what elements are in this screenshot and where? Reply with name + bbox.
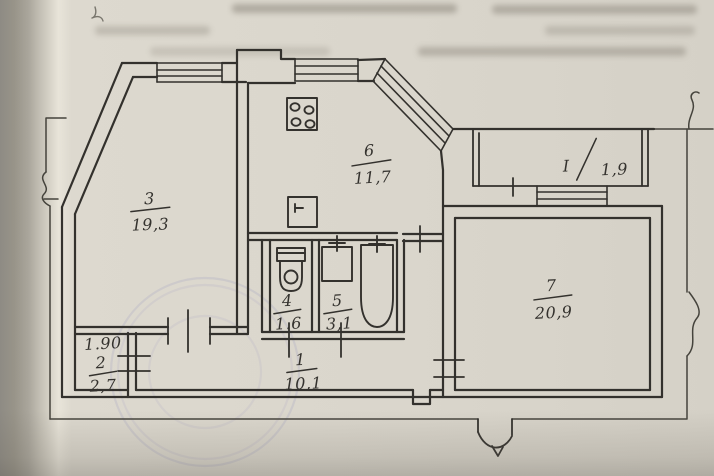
room-number: 5 (331, 291, 343, 311)
ink-mark (92, 7, 103, 21)
entrance-door-arc (478, 419, 512, 456)
room-area: 10,1 (284, 373, 322, 393)
toilet-icon (277, 248, 305, 291)
room-number: 2 (94, 353, 107, 373)
kitchen-sink-icon (288, 197, 317, 227)
bathtub-icon (361, 236, 393, 327)
room-7-label: 7 20,9 (532, 275, 573, 323)
room-number: 6 (363, 141, 375, 161)
washbasin-icon (322, 236, 352, 281)
floor-plan-drawing: 3 19,3 6 11,7 I 1,9 7 20,9 4 1.6 5 3,1 (0, 0, 714, 476)
kitchen-6-label: 6 11,7 (351, 140, 392, 188)
room-number: I (561, 156, 570, 175)
room-area: 2,7 (88, 375, 117, 395)
floor-plan-scan: 3 19,3 6 11,7 I 1,9 7 20,9 4 1.6 5 3,1 (0, 0, 714, 476)
room-area: 3,1 (325, 313, 353, 333)
room-area: 11,7 (353, 167, 392, 188)
room-area: 19,3 (131, 214, 169, 234)
outer-boundary-lines (42, 92, 713, 419)
room-number: 1 (295, 350, 306, 369)
kitchen-stove-icon (287, 98, 317, 130)
room-3-label: 3 19,3 (130, 188, 171, 234)
room-area: 1.6 (274, 313, 302, 333)
balcony-label: I 1,9 (561, 137, 628, 180)
room-number: 4 (280, 291, 293, 311)
bath-5-label: 5 3,1 (323, 290, 354, 333)
room-number: 7 (545, 276, 557, 296)
room-number: 3 (144, 189, 155, 208)
closet-dimension: 1.90 (84, 333, 123, 354)
room-area: 20,9 (533, 302, 573, 323)
room-area: 1,9 (601, 159, 629, 179)
